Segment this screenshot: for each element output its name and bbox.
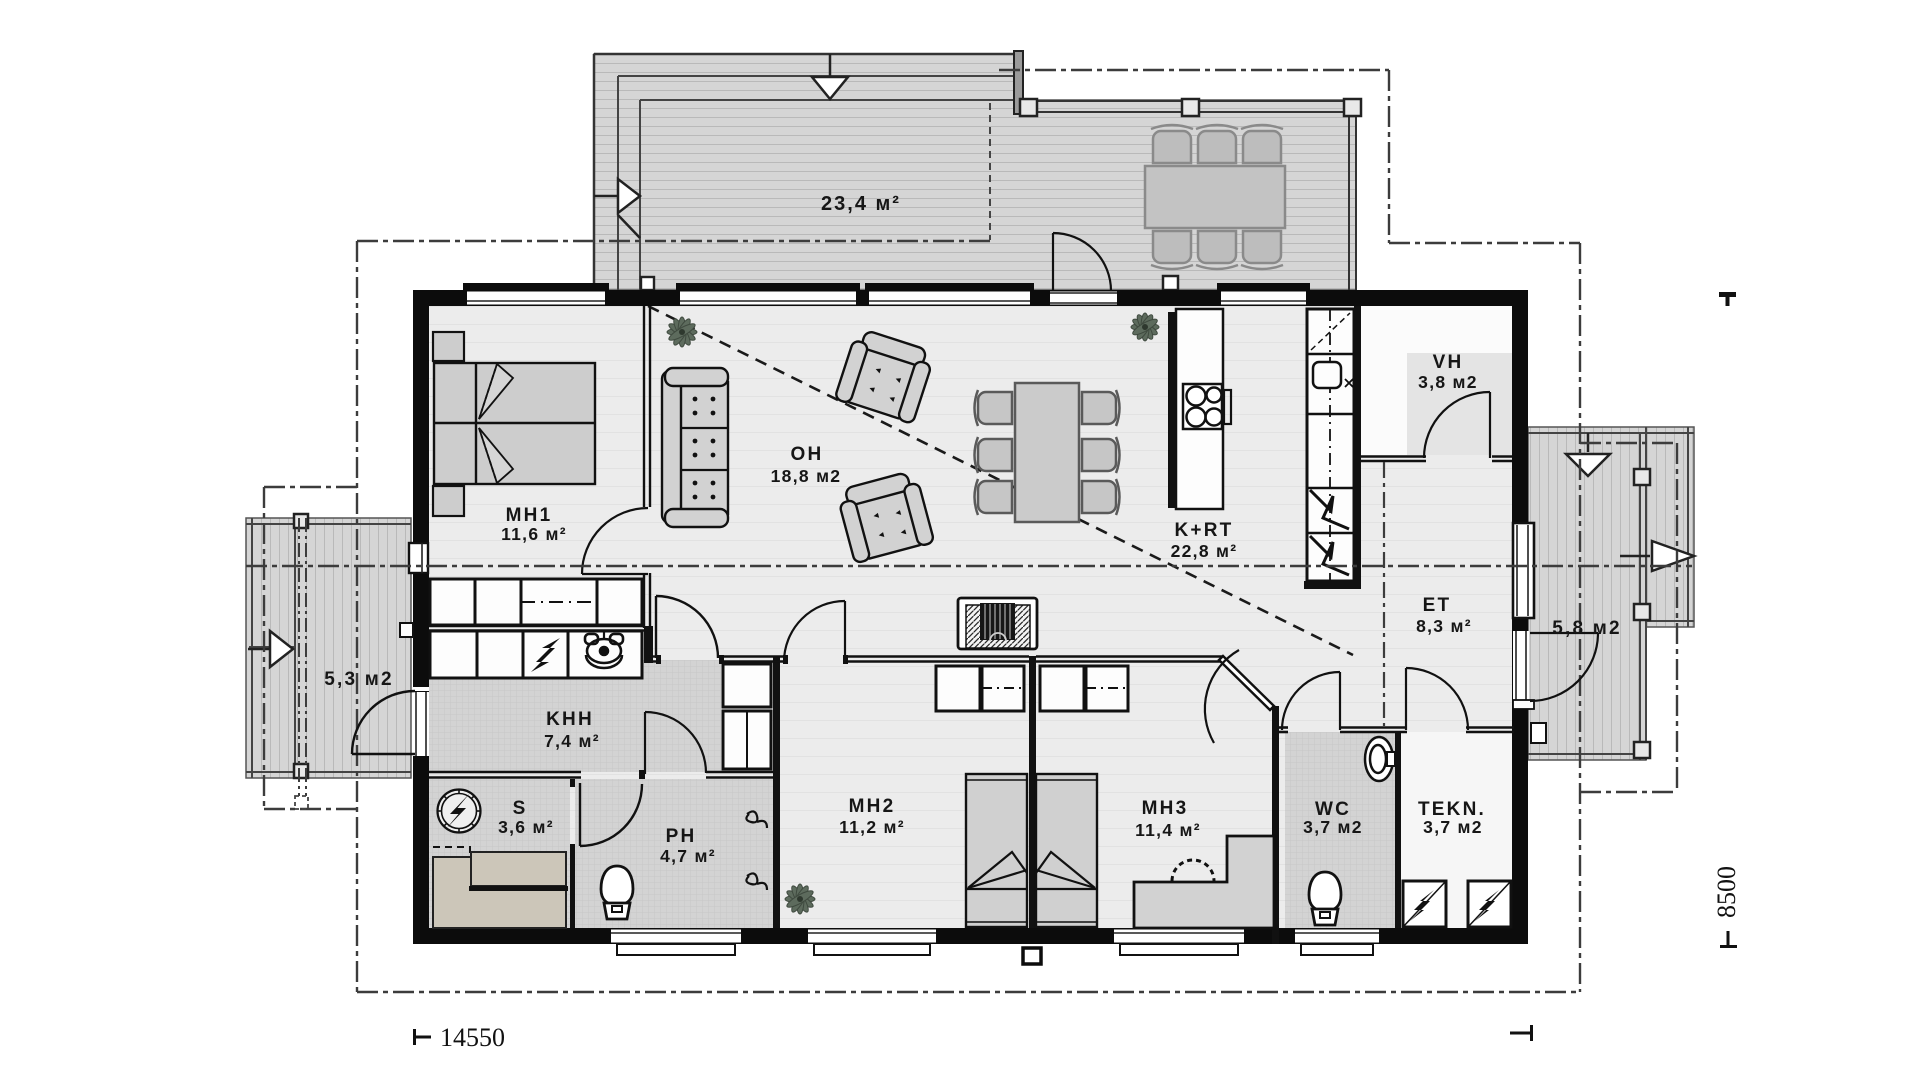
svg-text:18,8 м2: 18,8 м2 [771,466,842,486]
svg-text:5,3 м2: 5,3 м2 [324,669,394,690]
svg-text:7,4 м²: 7,4 м² [544,731,600,751]
svg-text:MH1: MH1 [506,505,553,526]
svg-text:11,4 м²: 11,4 м² [1135,820,1201,840]
svg-text:23,4 м²: 23,4 м² [821,193,901,215]
svg-text:VH: VH [1433,352,1464,373]
svg-text:3,6 м²: 3,6 м² [498,817,554,837]
svg-text:14550: 14550 [440,1023,505,1052]
svg-text:11,2 м²: 11,2 м² [839,817,905,837]
svg-text:22,8 м²: 22,8 м² [1171,541,1238,561]
svg-text:K+RT: K+RT [1175,520,1234,541]
svg-text:OH: OH [791,444,824,465]
svg-text:PH: PH [666,826,697,847]
svg-text:MH3: MH3 [1142,798,1189,819]
svg-text:3,8 м2: 3,8 м2 [1418,372,1478,392]
svg-text:8,3 м²: 8,3 м² [1416,616,1472,636]
svg-text:5,8 м2: 5,8 м2 [1552,618,1622,639]
svg-text:MH2: MH2 [849,796,896,817]
svg-text:S: S [513,798,528,819]
svg-text:3,7 м2: 3,7 м2 [1423,817,1483,837]
svg-text:11,6 м²: 11,6 м² [501,524,567,544]
svg-text:3,7 м2: 3,7 м2 [1303,817,1363,837]
svg-text:8500: 8500 [1712,866,1741,918]
svg-text:ET: ET [1423,595,1452,616]
svg-text:4,7 м²: 4,7 м² [660,846,716,866]
svg-text:KHH: KHH [546,709,594,730]
